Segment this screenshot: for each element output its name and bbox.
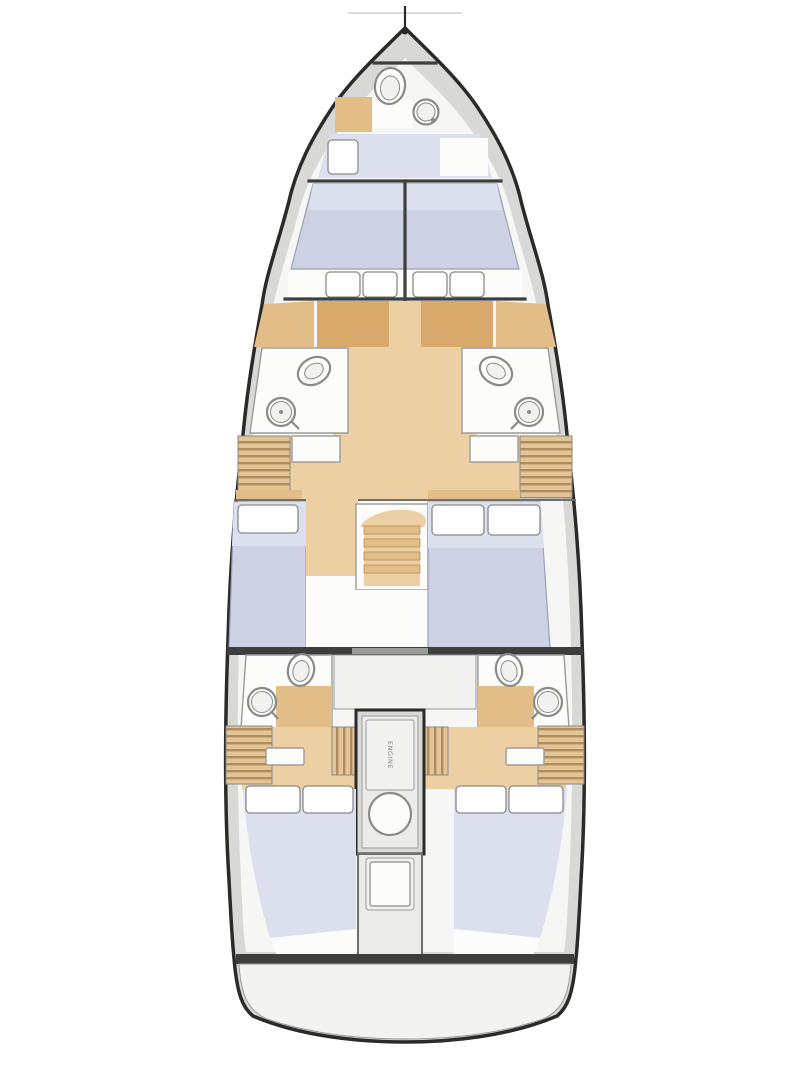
starboard-aft-step bbox=[506, 748, 544, 765]
starboard-table-panel bbox=[421, 301, 493, 347]
port-table-panel bbox=[317, 301, 389, 347]
port-aft-step bbox=[266, 748, 304, 765]
port-cabin-entry bbox=[306, 576, 360, 650]
stair-tread bbox=[364, 565, 420, 573]
port-mid-locker-band bbox=[236, 490, 302, 500]
mid-corridor-floor bbox=[306, 490, 358, 576]
stair-tread bbox=[364, 539, 420, 547]
engine-icon bbox=[369, 793, 411, 835]
bow-head-cabinet bbox=[335, 97, 372, 132]
starboard-hull-louver-locker bbox=[538, 726, 584, 784]
starboard-mid-head bbox=[462, 348, 560, 433]
pillow bbox=[509, 786, 563, 813]
pillow bbox=[450, 272, 484, 297]
starboard-louver-locker bbox=[520, 436, 572, 498]
liferaft-locker-lid bbox=[370, 862, 410, 906]
starboard-louver-door bbox=[424, 727, 448, 775]
pillow bbox=[456, 786, 506, 813]
port-mid-head bbox=[250, 348, 348, 433]
starboard-mid-sink-drain bbox=[527, 410, 531, 414]
starboard-mid-locker-band bbox=[428, 490, 520, 500]
transom-bulkhead bbox=[236, 954, 574, 964]
port-hull-louver-locker bbox=[226, 726, 272, 784]
starboard-aft-sink-basin bbox=[538, 692, 559, 713]
port-aft-shower bbox=[276, 686, 332, 727]
port-aft-sink-basin bbox=[252, 692, 273, 713]
pillow bbox=[413, 272, 447, 297]
starboard-shelf bbox=[470, 436, 518, 462]
pillow bbox=[488, 505, 540, 535]
yacht-deck-plan: ENGINE bbox=[0, 0, 810, 1080]
pillow bbox=[303, 786, 353, 813]
port-shelf bbox=[292, 436, 340, 462]
port-louver-locker bbox=[238, 436, 290, 498]
forepeak-shelf bbox=[440, 138, 488, 176]
pillow bbox=[246, 786, 300, 813]
port-louver-door bbox=[332, 727, 356, 775]
stair-tread bbox=[364, 552, 420, 560]
pillow bbox=[326, 272, 360, 297]
port-mid-sink-drain bbox=[279, 410, 283, 414]
pillow bbox=[363, 272, 397, 297]
pillow bbox=[432, 505, 484, 535]
starboard-aft-shower bbox=[478, 686, 534, 727]
forepeak-pillow bbox=[328, 140, 358, 174]
pillow bbox=[238, 505, 298, 533]
mast-foot-icon bbox=[402, 28, 409, 35]
entry-landing bbox=[334, 655, 476, 709]
yacht-deck-plan-canvas: ENGINE bbox=[0, 0, 810, 1080]
engine-label: ENGINE bbox=[386, 741, 394, 769]
stairs-landing bbox=[354, 590, 428, 650]
bow-sink-faucet bbox=[431, 118, 435, 122]
companionway-opening bbox=[352, 648, 428, 654]
stair-tread bbox=[364, 526, 420, 534]
